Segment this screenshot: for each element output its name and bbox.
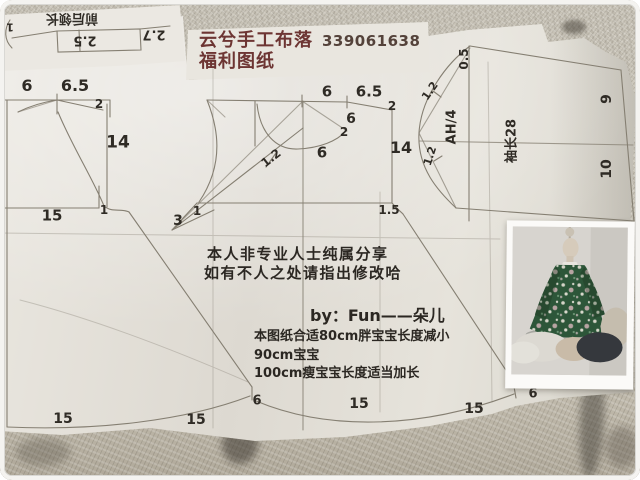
brand-title: 云兮手工布落 xyxy=(199,31,313,52)
measurement-label: AH/4 xyxy=(446,110,459,145)
measurement-label: 1 xyxy=(193,205,201,217)
measurement-label: 6.5 xyxy=(61,78,89,94)
measurement-label: 2 xyxy=(95,98,103,110)
measurement-label: 14 xyxy=(390,140,412,156)
measurement-label: 6.5 xyxy=(356,85,383,100)
measurement-label: 6 xyxy=(252,395,261,408)
brand-subtitle: 福利图纸 xyxy=(199,52,275,73)
measurement-label: 2 xyxy=(340,126,348,138)
measurement-label: 1.5 xyxy=(378,204,399,216)
size-note-line2: 90cm宝宝 xyxy=(254,349,319,364)
sleeve-length-label: 袖长28 xyxy=(506,119,519,163)
dress-photo xyxy=(505,220,635,389)
brand-number: 339061638 xyxy=(322,33,420,50)
size-note-line1: 本图纸合适80cm胖宝宝长度减小 xyxy=(254,330,449,345)
measurement-label: 15 xyxy=(464,402,483,416)
dress-photo-image xyxy=(511,226,628,375)
disclaimer-line2: 如有不人之处请指出修改哈 xyxy=(204,265,402,282)
measurement-label: 15 xyxy=(349,397,368,411)
measurement-label: 6 xyxy=(21,78,32,94)
measurement-label: 3 xyxy=(173,214,183,228)
measurement-label: 1 xyxy=(100,204,108,216)
measurement-label: 15 xyxy=(186,413,205,427)
measurement-label: 15 xyxy=(42,209,63,224)
byline: by：Fun——朵儿 xyxy=(310,307,445,325)
measurement-label: 2.7 xyxy=(142,28,165,41)
measurement-label: 2.5 xyxy=(73,34,96,47)
measurement-label: 6 xyxy=(322,85,332,100)
measurement-label: 9 xyxy=(600,94,614,104)
flipped-caption: 前后领长 xyxy=(46,12,98,25)
sewing-pattern-photo: 前后领长 2.5 2.7 1 6 6.5 2 14 15 1 15 15 6 6… xyxy=(0,0,640,480)
measurement-label: 1 xyxy=(6,22,14,33)
measurement-label: 2 xyxy=(388,100,396,112)
measurement-label: 6 xyxy=(317,146,327,161)
size-note-line3: 100cm瘦宝宝长度适当加长 xyxy=(254,367,419,382)
measurement-label: 10 xyxy=(600,159,614,178)
measurement-label: 15 xyxy=(53,412,72,426)
measurement-label: 0.5 xyxy=(458,48,470,69)
measurement-label: 6 xyxy=(346,112,356,126)
green-floral-dress-on-child-mannequin xyxy=(511,226,628,375)
measurement-label: 14 xyxy=(106,135,130,152)
disclaimer-line1: 本人非专业人士纯属分享 xyxy=(207,246,389,263)
measurement-label: 6 xyxy=(528,388,537,401)
